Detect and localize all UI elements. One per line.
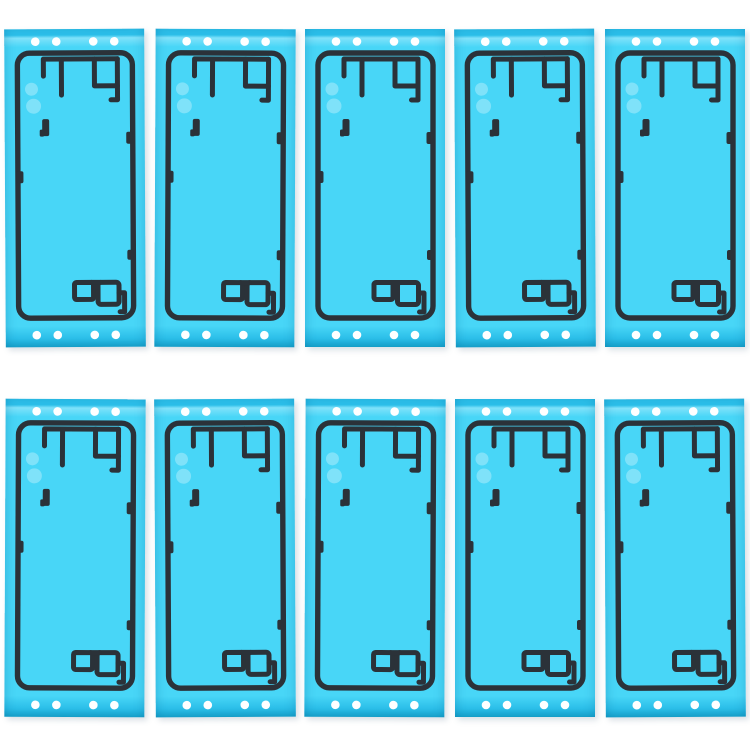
adhesive-pattern xyxy=(4,399,145,718)
right-edge-tab xyxy=(726,502,733,514)
right-edge-tab xyxy=(127,502,134,514)
right-edge-tab xyxy=(126,132,133,144)
adhesive-sticker-sheet xyxy=(154,29,295,348)
bottom-region-outline xyxy=(224,652,274,682)
bottom-region-outline xyxy=(223,282,273,312)
adhesive-pattern xyxy=(454,29,596,348)
camera-region-outline xyxy=(194,59,268,100)
right-edge-tab xyxy=(276,502,283,514)
right-edge-tab xyxy=(577,502,584,514)
camera-region-outline xyxy=(644,59,718,100)
flag-cutout-mark xyxy=(190,489,200,507)
adhesive-sticker-sheet xyxy=(304,399,445,718)
right-edge-tab-lower xyxy=(127,620,133,630)
camera-region-outline xyxy=(43,59,117,100)
left-edge-tab xyxy=(317,171,324,183)
camera-region-outline xyxy=(44,429,118,470)
flag-cutout-mark xyxy=(640,489,650,507)
camera-region-outline xyxy=(494,429,568,470)
left-edge-tab xyxy=(317,541,324,553)
right-edge-tab-lower xyxy=(427,620,433,630)
flag-cutout-mark xyxy=(40,119,50,137)
bottom-region-outline xyxy=(524,282,574,312)
adhesive-pattern xyxy=(4,29,146,348)
adhesive-sticker-sheet xyxy=(4,29,146,348)
right-edge-tab-lower xyxy=(127,250,133,260)
right-edge-tab-lower xyxy=(427,250,433,260)
adhesive-sticker-sheet xyxy=(305,29,445,347)
sticker-grid xyxy=(0,0,750,750)
reflection-highlights xyxy=(175,453,191,484)
reflection-highlights xyxy=(326,83,342,114)
left-edge-tab xyxy=(617,171,624,183)
adhesive-pattern xyxy=(154,399,296,718)
reflection-highlights xyxy=(25,83,41,114)
right-edge-tab xyxy=(277,132,284,144)
adhesive-pattern xyxy=(304,399,445,718)
bottom-region-outline xyxy=(373,652,423,682)
left-edge-tab xyxy=(17,541,24,553)
camera-region-outline xyxy=(344,429,418,470)
right-edge-tab xyxy=(576,132,583,144)
bottom-region-outline xyxy=(674,652,724,682)
adhesive-sticker-sheet xyxy=(455,399,595,717)
left-edge-tab xyxy=(467,541,474,553)
left-edge-tab xyxy=(167,541,174,553)
reflection-highlights xyxy=(476,453,492,484)
reflection-highlights xyxy=(26,452,42,483)
bottom-region-outline xyxy=(73,652,123,682)
reflection-highlights xyxy=(625,453,641,484)
reflection-highlights xyxy=(326,452,342,483)
adhesive-sticker-sheet xyxy=(604,399,746,718)
reflection-highlights xyxy=(475,83,491,114)
right-edge-tab-lower xyxy=(727,620,733,630)
camera-region-outline xyxy=(344,59,418,100)
right-edge-tab-lower xyxy=(577,250,583,260)
adhesive-pattern xyxy=(455,399,595,717)
adhesive-pattern xyxy=(305,29,445,347)
right-edge-tab xyxy=(427,132,434,144)
flag-cutout-mark xyxy=(40,489,50,507)
right-edge-tab-lower xyxy=(727,250,733,260)
left-edge-tab xyxy=(467,171,474,183)
bottom-region-outline xyxy=(524,653,574,683)
reflection-highlights xyxy=(626,83,642,114)
right-edge-tab-lower xyxy=(577,620,583,630)
right-edge-tab xyxy=(727,132,734,144)
camera-region-outline xyxy=(493,59,567,100)
left-edge-tab xyxy=(17,171,24,183)
flag-cutout-mark xyxy=(190,119,200,137)
reflection-highlights xyxy=(176,82,192,113)
adhesive-pattern xyxy=(605,29,745,347)
flag-cutout-mark xyxy=(640,119,650,137)
bottom-region-outline xyxy=(374,283,424,313)
adhesive-pattern xyxy=(154,29,295,348)
left-edge-tab xyxy=(617,541,624,553)
right-edge-tab-lower xyxy=(277,250,283,260)
flag-cutout-mark xyxy=(340,489,350,507)
adhesive-sticker-sheet xyxy=(454,29,596,348)
adhesive-pattern xyxy=(604,399,746,718)
bottom-region-outline xyxy=(674,283,724,313)
right-edge-tab xyxy=(427,502,434,514)
adhesive-sticker-sheet xyxy=(605,29,745,347)
right-edge-tab-lower xyxy=(277,620,283,630)
camera-region-outline xyxy=(643,429,717,470)
flag-cutout-mark xyxy=(490,489,500,507)
bottom-region-outline xyxy=(74,282,124,312)
flag-cutout-mark xyxy=(340,119,350,137)
camera-region-outline xyxy=(193,429,267,470)
adhesive-sticker-sheet xyxy=(154,399,296,718)
flag-cutout-mark xyxy=(490,119,500,137)
adhesive-sticker-sheet xyxy=(4,399,145,718)
left-edge-tab xyxy=(167,171,174,183)
